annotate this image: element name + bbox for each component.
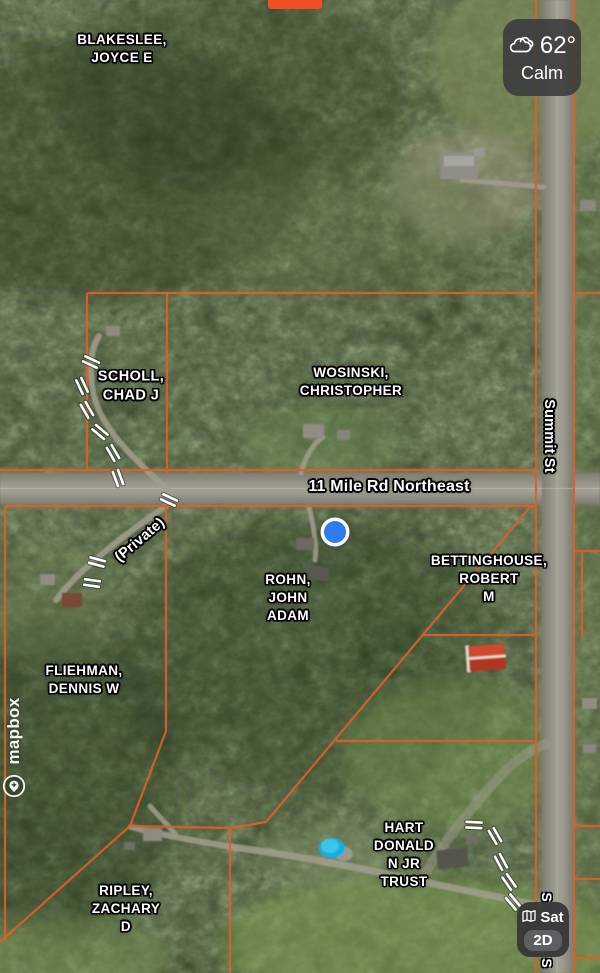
parcel-label-line: ROBERT: [431, 570, 547, 588]
parcel-label-line: CHRISTOPHER: [300, 382, 402, 400]
map-icon: [522, 909, 536, 926]
parcel-label-scholl: SCHOLL, CHAD J: [98, 368, 164, 407]
road-label-summit-st: Summit St: [541, 399, 557, 473]
parcel-label-hart: HART DONALD N JR TRUST: [374, 819, 434, 891]
mode-2d-button[interactable]: 2D: [524, 930, 561, 951]
parcel-label-line: ROHN,: [265, 571, 311, 589]
parcel-label-ripley: RIPLEY, ZACHARY D: [92, 882, 160, 936]
parcel-label-line: BETTINGHOUSE,: [431, 552, 547, 570]
parcel-label-line: JOYCE E: [77, 49, 167, 67]
top-banner-notch[interactable]: [268, 0, 322, 9]
parcel-label-line: RIPLEY,: [92, 882, 160, 900]
parcel-label-line: DONALD: [374, 837, 434, 855]
parcel-label-fliehman: FLIEHMAN, DENNIS W: [45, 662, 122, 698]
parcel-label-line: N JR: [374, 855, 434, 873]
parcel-label-rohn: ROHN, JOHN ADAM: [265, 571, 311, 625]
layer-control-widget: Sat 2D: [517, 902, 569, 957]
mapbox-logo-text[interactable]: mapbox: [4, 698, 24, 765]
street-label-fragment-top: S: [539, 892, 555, 901]
parcel-label-line: ADAM: [265, 607, 311, 625]
parcel-label-line: FLIEHMAN,: [45, 662, 122, 680]
road-label-11-mile-rd: 11 Mile Rd Northeast: [308, 478, 469, 496]
location-dot: [318, 515, 353, 550]
parcel-label-line: ZACHARY: [92, 900, 160, 918]
parcel-label-bettinghouse: BETTINGHOUSE, ROBERT M: [431, 552, 547, 606]
map-canvas[interactable]: [0, 0, 600, 973]
parcel-label-line: M: [431, 588, 547, 606]
parcel-label-line: SCHOLL,: [98, 368, 164, 387]
satellite-layer-button[interactable]: Sat: [522, 909, 563, 926]
cloudy-icon: [508, 33, 535, 59]
parcel-label-line: D: [92, 918, 160, 936]
weather-row: 62°: [508, 32, 576, 60]
parcel-label-line: DENNIS W: [45, 680, 122, 698]
temperature-value: 62°: [540, 32, 576, 60]
parcel-label-line: JOHN: [265, 589, 311, 607]
parcel-label-line: BLAKESLEE,: [77, 31, 167, 49]
map-app-screen: BLAKESLEE, JOYCE E SCHOLL, CHAD J WOSINS…: [0, 0, 600, 973]
parcel-label-blakeslee: BLAKESLEE, JOYCE E: [77, 31, 167, 67]
wind-condition: Calm: [521, 63, 563, 84]
parcel-label-line: CHAD J: [98, 387, 164, 406]
mapbox-logo-icon[interactable]: [3, 775, 25, 802]
red-roof-house: [465, 643, 507, 673]
parcel-label-line: TRUST: [374, 873, 434, 891]
parcel-label-wosinski: WOSINSKI, CHRISTOPHER: [300, 364, 402, 400]
parcel-label-line: WOSINSKI,: [300, 364, 402, 382]
satellite-layer-label: Sat: [540, 909, 563, 926]
street-label-fragment-bottom: S: [539, 958, 555, 967]
weather-widget[interactable]: 62° Calm: [503, 19, 581, 96]
parcel-label-line: HART: [374, 819, 434, 837]
